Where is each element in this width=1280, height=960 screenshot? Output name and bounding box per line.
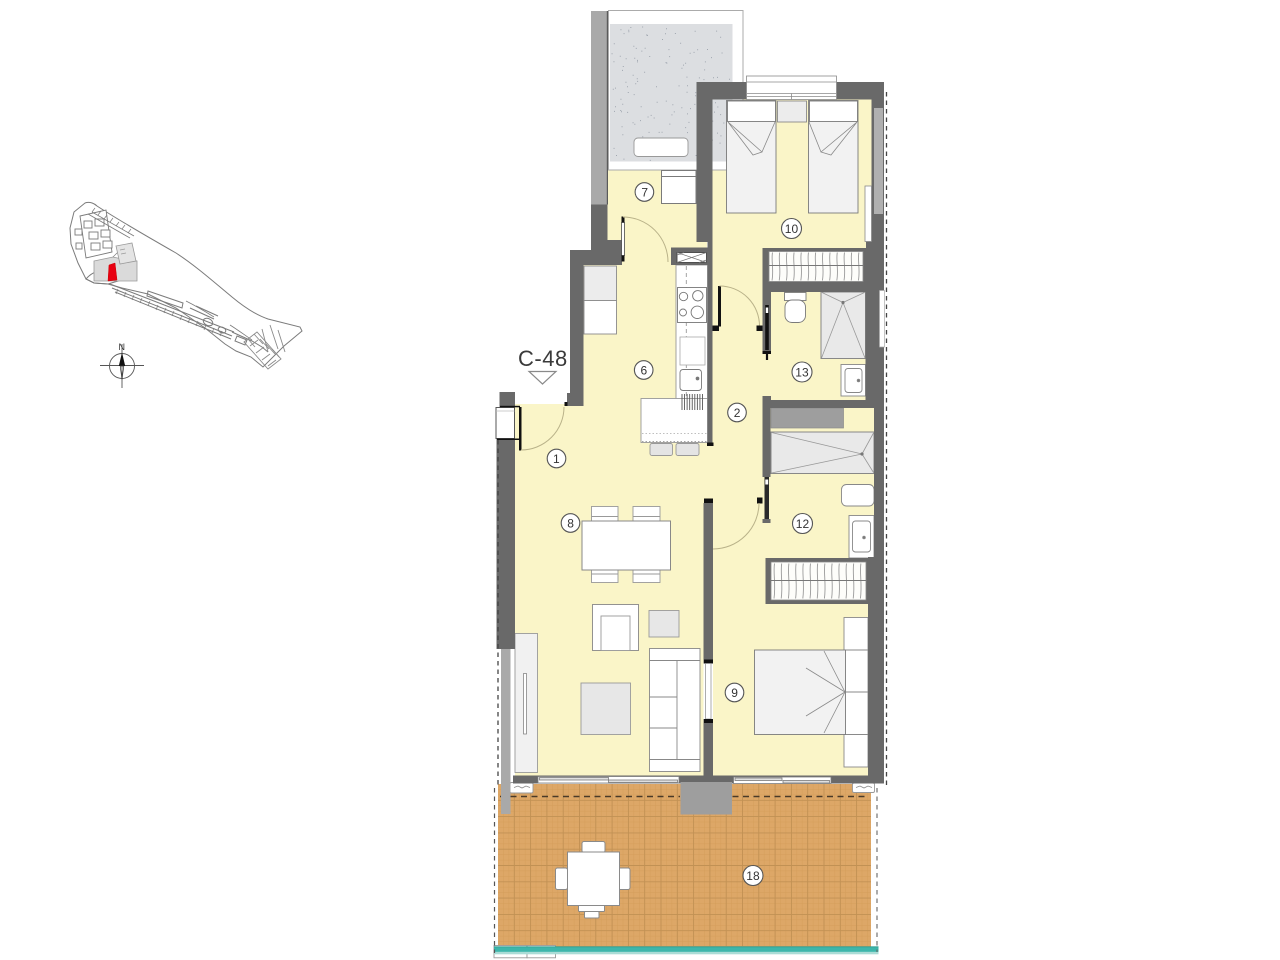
svg-text:C-48: C-48 <box>518 346 568 371</box>
svg-text:7: 7 <box>641 186 648 200</box>
svg-text:8: 8 <box>567 517 574 531</box>
svg-text:13: 13 <box>795 366 809 380</box>
svg-text:10: 10 <box>785 222 799 236</box>
svg-text:9: 9 <box>731 686 738 700</box>
svg-text:1: 1 <box>553 452 560 466</box>
svg-text:N: N <box>119 342 126 352</box>
svg-text:6: 6 <box>641 364 648 378</box>
svg-text:18: 18 <box>746 869 760 883</box>
svg-text:2: 2 <box>734 406 741 420</box>
svg-text:12: 12 <box>796 517 810 531</box>
